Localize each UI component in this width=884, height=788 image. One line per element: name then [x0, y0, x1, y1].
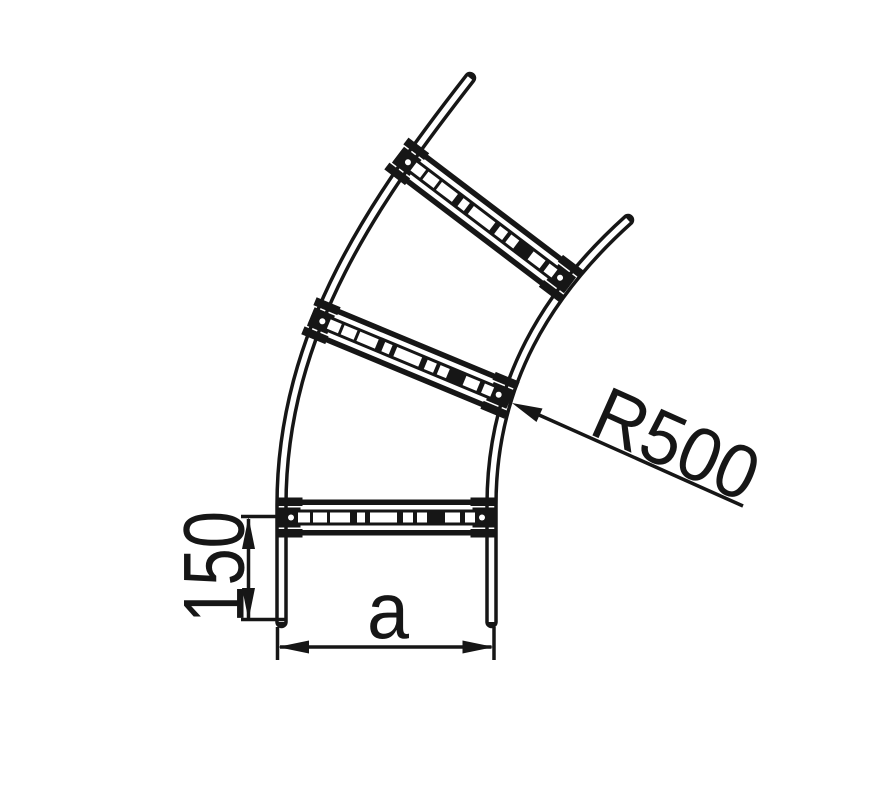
technical-drawing-canvas: 150 a R500	[0, 0, 884, 788]
cable-ladder-bend-drawing: 150 a R500	[0, 0, 884, 788]
rung-middle	[301, 297, 519, 418]
dim-a-arrow-left	[278, 641, 310, 654]
dimension-a: a	[278, 566, 495, 660]
radius-arrowhead	[512, 403, 543, 422]
dimension-150: 150	[167, 511, 288, 623]
radius-label: R500	[580, 371, 772, 519]
radius-callout: R500	[512, 371, 772, 519]
ladder-body	[277, 78, 629, 622]
dim-a-arrow-right	[463, 641, 495, 654]
rung-bottom	[277, 498, 497, 538]
rung-top	[384, 138, 583, 303]
width-a-label: a	[367, 566, 409, 655]
length-150-label: 150	[167, 511, 263, 623]
